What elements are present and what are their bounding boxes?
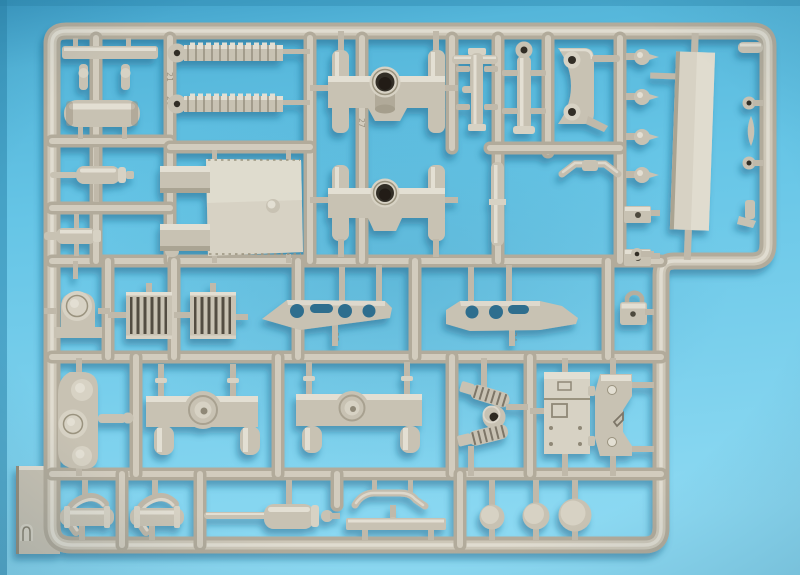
photo-vignette xyxy=(0,0,800,575)
photo-canvas: 21 20 27 23 24 xyxy=(0,0,800,575)
sprue-photo: 21 20 27 23 24 xyxy=(0,0,800,575)
